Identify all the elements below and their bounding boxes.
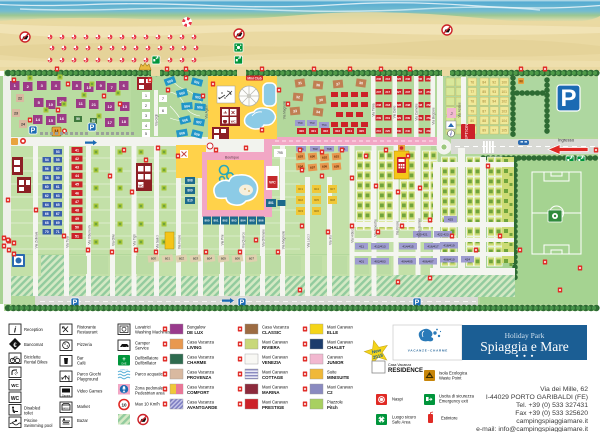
- svg-text:Swimming pool: Swimming pool: [24, 423, 52, 428]
- svg-text:10: 10: [121, 403, 127, 408]
- svg-text:229: 229: [396, 116, 401, 120]
- svg-text:424: 424: [465, 257, 470, 261]
- svg-text:87: 87: [482, 109, 486, 113]
- svg-text:22: 22: [18, 96, 22, 100]
- svg-text:603: 603: [298, 154, 304, 159]
- svg-text:239: 239: [405, 116, 410, 120]
- svg-text:Via dei Mille, 62: Via dei Mille, 62: [540, 386, 588, 393]
- svg-text:Ingresso: Ingresso: [558, 138, 575, 143]
- svg-text:78: 78: [470, 100, 474, 104]
- svg-text:94: 94: [492, 100, 496, 104]
- svg-text:861: 861: [165, 256, 171, 261]
- svg-text:908: 908: [330, 198, 335, 202]
- svg-text:WC: WC: [231, 120, 237, 124]
- svg-text:V A C A N Z E ~ C H A R M E: V A C A N Z E ~ C H A R M E: [408, 349, 448, 353]
- svg-text:Bazar: Bazar: [77, 418, 89, 423]
- svg-text:PROVENZA: PROVENZA: [187, 375, 212, 380]
- svg-text:104: 104: [502, 119, 508, 123]
- svg-text:Bancomat: Bancomat: [24, 342, 44, 347]
- svg-text:PRESTIGE: PRESTIGE: [262, 405, 284, 410]
- svg-text:801: 801: [268, 201, 274, 205]
- svg-text:865: 865: [221, 256, 227, 261]
- svg-text:Via Fresie: Via Fresie: [396, 221, 400, 236]
- svg-text:Games: Games: [62, 393, 71, 397]
- svg-text:Via Olivi: Via Olivi: [112, 234, 116, 246]
- svg-text:Via Tigli: Via Tigli: [133, 234, 137, 245]
- svg-text:218: 218: [385, 103, 390, 107]
- svg-text:Via Querce: Via Querce: [242, 232, 246, 248]
- svg-text:Via Fresie: Via Fresie: [178, 235, 182, 250]
- svg-text:237: 237: [405, 90, 410, 94]
- svg-text:805: 805: [249, 219, 254, 223]
- svg-text:76: 76: [470, 81, 474, 85]
- svg-text:401: 401: [359, 259, 364, 263]
- svg-text:62: 62: [45, 194, 49, 198]
- svg-text:Via Ortensie: Via Ortensie: [262, 229, 266, 247]
- svg-text:Via Gelsomini: Via Gelsomini: [418, 218, 422, 238]
- svg-text:48: 48: [75, 208, 79, 212]
- svg-text:66: 66: [45, 212, 49, 216]
- svg-text:300: 300: [299, 129, 304, 133]
- svg-text:Pitch: Pitch: [327, 405, 338, 410]
- svg-text:238: 238: [405, 103, 410, 107]
- svg-text:601: 601: [334, 154, 340, 159]
- svg-text:406/407: 406/407: [422, 259, 433, 263]
- svg-text:Via Salici: Via Salici: [156, 235, 160, 248]
- svg-text:42: 42: [75, 157, 79, 161]
- svg-text:305: 305: [359, 129, 364, 133]
- svg-text:MINISUITE: MINISUITE: [327, 375, 349, 380]
- svg-text:52: 52: [92, 119, 96, 123]
- svg-text:810: 810: [187, 199, 193, 203]
- svg-text:COTTAGE: COTTAGE: [262, 375, 283, 380]
- svg-text:Via Gigli: Via Gigli: [155, 114, 159, 126]
- svg-text:902: 902: [298, 198, 303, 202]
- svg-text:85: 85: [482, 90, 486, 94]
- svg-text:302: 302: [323, 129, 328, 133]
- svg-text:Market: Market: [77, 404, 91, 409]
- svg-text:Reception: Reception: [24, 327, 44, 332]
- svg-text:602: 602: [322, 155, 328, 160]
- svg-text:864: 864: [207, 256, 213, 261]
- svg-text:Emergency exit: Emergency exit: [439, 399, 469, 404]
- svg-text:600: 600: [310, 154, 316, 159]
- svg-text:Via Pini: Via Pini: [221, 234, 225, 245]
- svg-text:Via Agavi: Via Agavi: [205, 105, 209, 119]
- svg-text:Parco acquatico: Parco acquatico: [135, 372, 166, 377]
- svg-text:DE LUX: DE LUX: [187, 330, 203, 335]
- svg-text:Pizzeria: Pizzeria: [77, 342, 93, 347]
- svg-text:210: 210: [376, 129, 381, 133]
- svg-text:866: 866: [235, 256, 241, 261]
- svg-text:505: 505: [197, 105, 203, 109]
- svg-text:10: 10: [49, 102, 54, 107]
- svg-text:34: 34: [316, 110, 320, 114]
- svg-text:209: 209: [376, 116, 381, 120]
- svg-text:DAE: DAE: [122, 362, 127, 365]
- svg-text:RESIDENCE: RESIDENCE: [388, 368, 423, 374]
- svg-text:860: 860: [151, 256, 157, 261]
- svg-text:32: 32: [296, 95, 300, 99]
- svg-text:Via Timia: Via Timia: [372, 103, 376, 116]
- svg-text:867: 867: [249, 256, 255, 261]
- svg-text:Café: Café: [77, 361, 87, 366]
- svg-text:55: 55: [56, 158, 60, 162]
- svg-text:800: 800: [204, 219, 209, 223]
- svg-text:753: 753: [309, 121, 314, 125]
- svg-text:CLASSIC: CLASSIC: [262, 330, 282, 335]
- svg-text:57: 57: [56, 167, 60, 171]
- svg-text:Via Viburnum: Via Viburnum: [88, 225, 92, 244]
- svg-text:65: 65: [56, 203, 60, 207]
- svg-text:795: 795: [277, 151, 283, 155]
- svg-text:92: 92: [492, 81, 496, 85]
- svg-text:100: 100: [502, 81, 508, 85]
- svg-text:I-44029 PORTO GARIBALDI (FE): I-44029 PORTO GARIBALDI (FE): [486, 394, 588, 401]
- svg-text:21: 21: [92, 102, 97, 107]
- svg-text:VENEZIA: VENEZIA: [262, 360, 282, 365]
- svg-text:Via Dalie: Via Dalie: [393, 105, 397, 118]
- svg-text:64: 64: [45, 203, 49, 207]
- svg-text:13: 13: [123, 104, 128, 109]
- svg-text:56: 56: [45, 167, 49, 171]
- svg-text:18: 18: [122, 119, 127, 124]
- svg-text:Casa Vacanza: Casa Vacanza: [388, 363, 411, 367]
- svg-text:37: 37: [336, 82, 340, 86]
- svg-text:304: 304: [347, 129, 352, 133]
- svg-text:14: 14: [36, 117, 41, 122]
- svg-text:102: 102: [502, 100, 508, 104]
- svg-text:97: 97: [492, 129, 496, 133]
- svg-text:798: 798: [326, 147, 331, 151]
- svg-text:Estintore: Estintore: [441, 416, 458, 421]
- svg-text:68: 68: [45, 221, 49, 225]
- svg-text:227: 227: [396, 90, 401, 94]
- svg-text:907: 907: [330, 187, 335, 191]
- svg-text:793: 793: [312, 147, 317, 151]
- svg-text:WC: WC: [139, 184, 145, 188]
- svg-text:67: 67: [56, 212, 60, 216]
- svg-text:105: 105: [502, 129, 508, 133]
- svg-text:95: 95: [492, 109, 496, 113]
- svg-text:103: 103: [502, 109, 508, 113]
- svg-text:12: 12: [108, 104, 113, 109]
- svg-text:Playground: Playground: [77, 377, 99, 382]
- svg-text:J: J: [450, 111, 452, 116]
- svg-text:809: 809: [187, 189, 193, 193]
- svg-text:Via Begonie: Via Begonie: [432, 107, 436, 124]
- svg-text:53: 53: [56, 150, 60, 154]
- svg-text:33: 33: [293, 109, 297, 113]
- svg-text:WC: WC: [11, 396, 20, 402]
- svg-text:418/419: 418/419: [443, 243, 454, 247]
- svg-text:MARINA: MARINA: [262, 390, 280, 395]
- svg-text:49: 49: [75, 217, 79, 221]
- svg-text:47: 47: [75, 200, 79, 204]
- svg-text:59: 59: [56, 176, 60, 180]
- svg-text:50: 50: [75, 226, 79, 230]
- svg-text:808: 808: [187, 179, 193, 183]
- svg-text:228: 228: [396, 103, 401, 107]
- svg-text:24: 24: [21, 122, 25, 126]
- svg-text:63: 63: [56, 194, 60, 198]
- svg-text:50: 50: [76, 117, 80, 121]
- svg-text:416/417: 416/417: [427, 244, 438, 248]
- svg-text:862: 862: [179, 256, 185, 261]
- svg-text:230: 230: [396, 129, 401, 133]
- svg-text:RIVIERA: RIVIERA: [262, 345, 281, 350]
- svg-text:C2: C2: [327, 390, 333, 395]
- svg-text:Video Games: Video Games: [77, 389, 102, 394]
- svg-text:88: 88: [482, 119, 486, 123]
- svg-text:31: 31: [298, 81, 303, 86]
- svg-text:AVANTGARDE: AVANTGARDE: [187, 405, 217, 410]
- svg-text:70: 70: [45, 230, 49, 234]
- svg-text:206: 206: [376, 77, 381, 81]
- svg-text:412/413: 412/413: [374, 244, 385, 248]
- svg-text:e-mail: info@campingspiaggiama: e-mail: info@campingspiaggiamare.it: [476, 426, 588, 432]
- svg-text:Safe Area: Safe Area: [392, 420, 411, 425]
- svg-text:901: 901: [298, 187, 303, 191]
- svg-text:96: 96: [492, 119, 496, 123]
- svg-text:77: 77: [470, 90, 474, 94]
- svg-text:COMFORT: COMFORT: [187, 390, 210, 395]
- svg-text:425: 425: [448, 217, 453, 221]
- svg-text:207: 207: [376, 90, 381, 94]
- svg-text:863: 863: [193, 256, 199, 261]
- svg-text:Waste Point: Waste Point: [439, 376, 462, 381]
- svg-text:408/410: 408/410: [443, 257, 454, 261]
- svg-text:84: 84: [482, 81, 486, 85]
- svg-text:Naspi: Naspi: [392, 397, 403, 402]
- svg-text:Pedestrian area: Pedestrian area: [135, 391, 165, 396]
- svg-text:422 423: 422 423: [437, 232, 448, 236]
- svg-text:45: 45: [75, 183, 79, 187]
- svg-text:69: 69: [56, 221, 60, 225]
- svg-text:71: 71: [56, 230, 60, 234]
- svg-text:WC: WC: [269, 180, 276, 185]
- svg-text:801: 801: [213, 219, 218, 223]
- svg-text:51: 51: [75, 234, 79, 238]
- svg-text:301: 301: [311, 129, 316, 133]
- svg-text:414/415: 414/415: [402, 244, 413, 248]
- svg-text:802: 802: [222, 219, 227, 223]
- svg-text:Rental Bikes: Rental Bikes: [24, 360, 48, 365]
- svg-text:CHARME: CHARME: [187, 360, 206, 365]
- svg-text:404/405: 404/405: [401, 259, 412, 263]
- svg-text:toilet: toilet: [24, 411, 34, 416]
- svg-text:LIVING: LIVING: [187, 345, 202, 350]
- svg-text:Via Lecci: Via Lecci: [307, 234, 311, 247]
- svg-text:CHALET: CHALET: [327, 345, 345, 350]
- svg-text:905: 905: [314, 198, 319, 202]
- svg-text:ELLE: ELLE: [327, 330, 338, 335]
- svg-text:80: 80: [470, 119, 474, 123]
- svg-text:36: 36: [316, 83, 320, 87]
- svg-text:JUNIOR: JUNIOR: [327, 360, 344, 365]
- svg-text:411: 411: [359, 244, 364, 248]
- svg-text:101: 101: [502, 90, 508, 94]
- svg-text:606: 606: [322, 164, 328, 169]
- svg-text:750: 750: [297, 121, 302, 125]
- svg-text:Max 10 Km/h: Max 10 Km/h: [135, 402, 160, 407]
- svg-text:906: 906: [314, 209, 319, 213]
- svg-text:226: 226: [396, 77, 401, 81]
- svg-text:216: 216: [385, 77, 390, 81]
- svg-text:Restaurant: Restaurant: [77, 330, 98, 335]
- svg-text:Via Camelie: Via Camelie: [415, 103, 419, 120]
- svg-text:44: 44: [75, 174, 79, 178]
- svg-text:Via Magnolie: Via Magnolie: [282, 231, 286, 250]
- svg-text:Via Zelkova: Via Zelkova: [35, 231, 39, 248]
- svg-text:15: 15: [49, 118, 54, 123]
- svg-text:219: 219: [385, 116, 390, 120]
- svg-text:41: 41: [75, 148, 79, 152]
- svg-text:Mini Club: Mini Club: [247, 76, 261, 80]
- svg-text:Defibrillator: Defibrillator: [135, 361, 157, 366]
- svg-text:904: 904: [314, 187, 319, 191]
- svg-text:504: 504: [184, 104, 190, 108]
- svg-text:PARCO: PARCO: [120, 369, 128, 372]
- svg-text:754: 754: [321, 123, 326, 127]
- svg-text:54: 54: [45, 158, 49, 162]
- svg-text:607: 607: [310, 165, 316, 170]
- svg-text:804: 804: [240, 219, 245, 223]
- svg-text:402/403: 402/403: [374, 259, 385, 263]
- svg-text:campingspiaggiamare.it: campingspiaggiamare.it: [516, 418, 588, 425]
- svg-text:806: 806: [258, 219, 263, 223]
- svg-text:30: 30: [319, 98, 323, 102]
- svg-text:93: 93: [492, 90, 496, 94]
- svg-text:P: P: [560, 85, 576, 112]
- svg-text:208: 208: [376, 103, 381, 107]
- svg-text:WC: WC: [11, 383, 19, 388]
- svg-text:Via Azalee: Via Azalee: [458, 102, 462, 117]
- svg-text:46: 46: [75, 191, 79, 195]
- svg-text:903: 903: [298, 209, 303, 213]
- svg-text:Boutique: Boutique: [225, 155, 239, 159]
- svg-text:303: 303: [335, 129, 340, 133]
- svg-text:79: 79: [470, 109, 474, 113]
- svg-text:86: 86: [482, 100, 486, 104]
- svg-text:Fax +39 (0) 533 325620: Fax +39 (0) 533 325620: [515, 410, 588, 417]
- svg-text:61: 61: [56, 185, 60, 189]
- svg-text:43: 43: [75, 165, 79, 169]
- svg-text:217: 217: [385, 90, 390, 94]
- svg-text:236: 236: [405, 77, 410, 81]
- svg-text:23: 23: [14, 111, 18, 115]
- svg-text:Tel. +39 (0) 533 327431: Tel. +39 (0) 533 327431: [516, 402, 588, 409]
- svg-text:Spiaggia e Mare: Spiaggia e Mare: [480, 339, 568, 354]
- svg-text:58: 58: [45, 176, 49, 180]
- svg-text:220: 220: [385, 129, 390, 133]
- svg-text:605: 605: [334, 164, 340, 169]
- svg-text:MARKET: MARKET: [62, 407, 70, 410]
- svg-text:240: 240: [405, 129, 410, 133]
- svg-text:17: 17: [108, 120, 113, 125]
- svg-text:Via Iris: Via Iris: [329, 235, 333, 245]
- svg-text:803: 803: [231, 219, 236, 223]
- svg-text:30: 30: [359, 81, 364, 86]
- svg-text:Service: Service: [135, 346, 150, 351]
- svg-text:89: 89: [482, 129, 486, 133]
- svg-text:60: 60: [45, 185, 49, 189]
- svg-text:16: 16: [60, 116, 65, 121]
